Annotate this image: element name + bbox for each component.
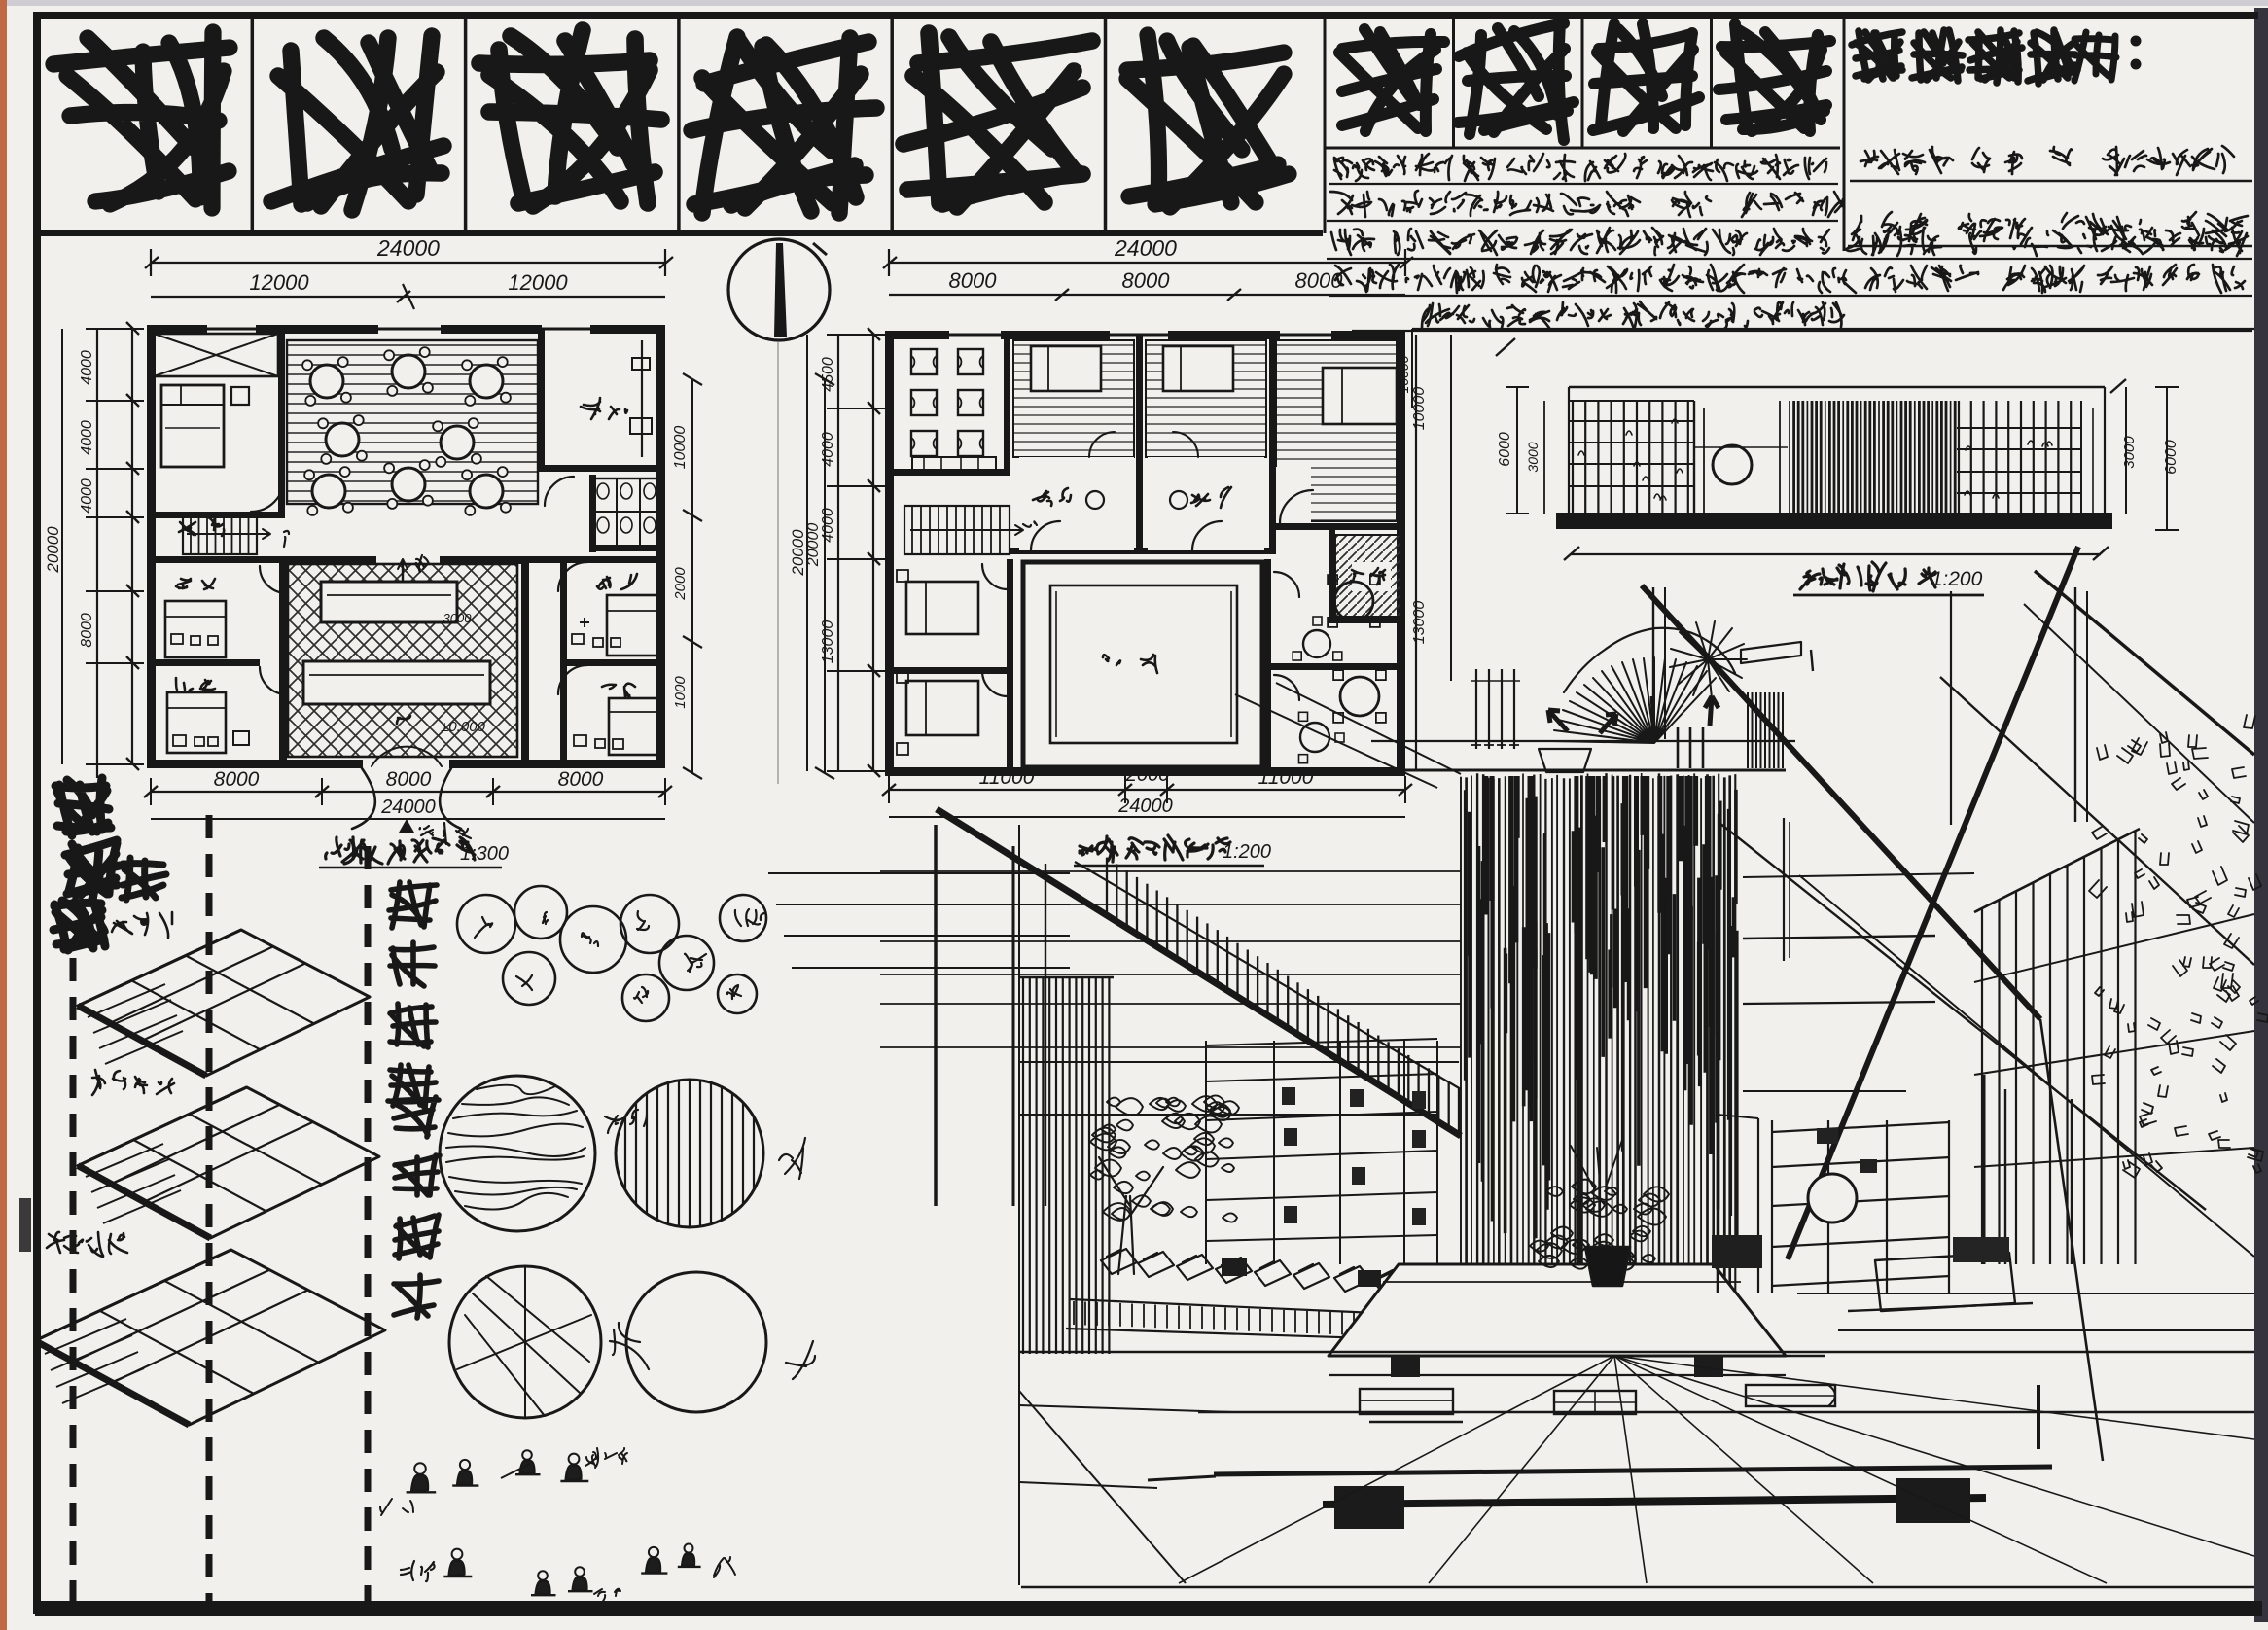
svg-text:6000: 6000 — [1497, 432, 1513, 467]
svg-text:11000: 11000 — [979, 766, 1035, 789]
svg-text:±0.000: ±0.000 — [441, 719, 485, 735]
svg-text:20000: 20000 — [789, 529, 807, 577]
svg-text:3000: 3000 — [1525, 442, 1541, 472]
svg-text:8000: 8000 — [386, 768, 432, 791]
svg-text:4000: 4000 — [820, 432, 836, 467]
svg-text:1000: 1000 — [672, 676, 689, 709]
svg-text:6000: 6000 — [2163, 440, 2179, 475]
svg-text:11000: 11000 — [1258, 766, 1314, 789]
svg-text:2000: 2000 — [1125, 764, 1170, 786]
svg-text:3000: 3000 — [443, 611, 473, 625]
svg-text:4000: 4000 — [79, 478, 95, 514]
svg-text:8000: 8000 — [558, 768, 604, 791]
svg-text:10000: 10000 — [1411, 387, 1428, 431]
svg-text:24000: 24000 — [1114, 235, 1177, 261]
svg-text:1:200: 1:200 — [1931, 568, 1983, 590]
svg-text:1:300: 1:300 — [460, 843, 509, 865]
svg-text:4000: 4000 — [79, 350, 95, 385]
svg-text:8000: 8000 — [1295, 268, 1344, 293]
svg-text:2000: 2000 — [672, 567, 689, 601]
svg-text:10000: 10000 — [1396, 355, 1411, 393]
svg-text:8000: 8000 — [79, 613, 95, 648]
svg-text:4000: 4000 — [820, 508, 836, 543]
svg-text:12000: 12000 — [508, 270, 568, 295]
svg-text:8000: 8000 — [1122, 268, 1171, 293]
svg-text:12000: 12000 — [249, 270, 309, 295]
svg-text:8000: 8000 — [949, 268, 998, 293]
svg-text:4500: 4500 — [820, 357, 836, 392]
svg-text:1:200: 1:200 — [1223, 841, 1271, 863]
svg-text:8000: 8000 — [214, 768, 260, 791]
svg-text:13000: 13000 — [1411, 601, 1428, 645]
svg-text:3000: 3000 — [2121, 436, 2138, 469]
svg-text:10000: 10000 — [672, 426, 689, 470]
svg-text:20000: 20000 — [44, 526, 62, 574]
svg-text:13000: 13000 — [820, 620, 836, 664]
svg-text:4000: 4000 — [79, 420, 95, 455]
svg-text:24000: 24000 — [380, 797, 436, 818]
svg-text:24000: 24000 — [376, 235, 440, 261]
svg-text:24000: 24000 — [1117, 796, 1173, 817]
